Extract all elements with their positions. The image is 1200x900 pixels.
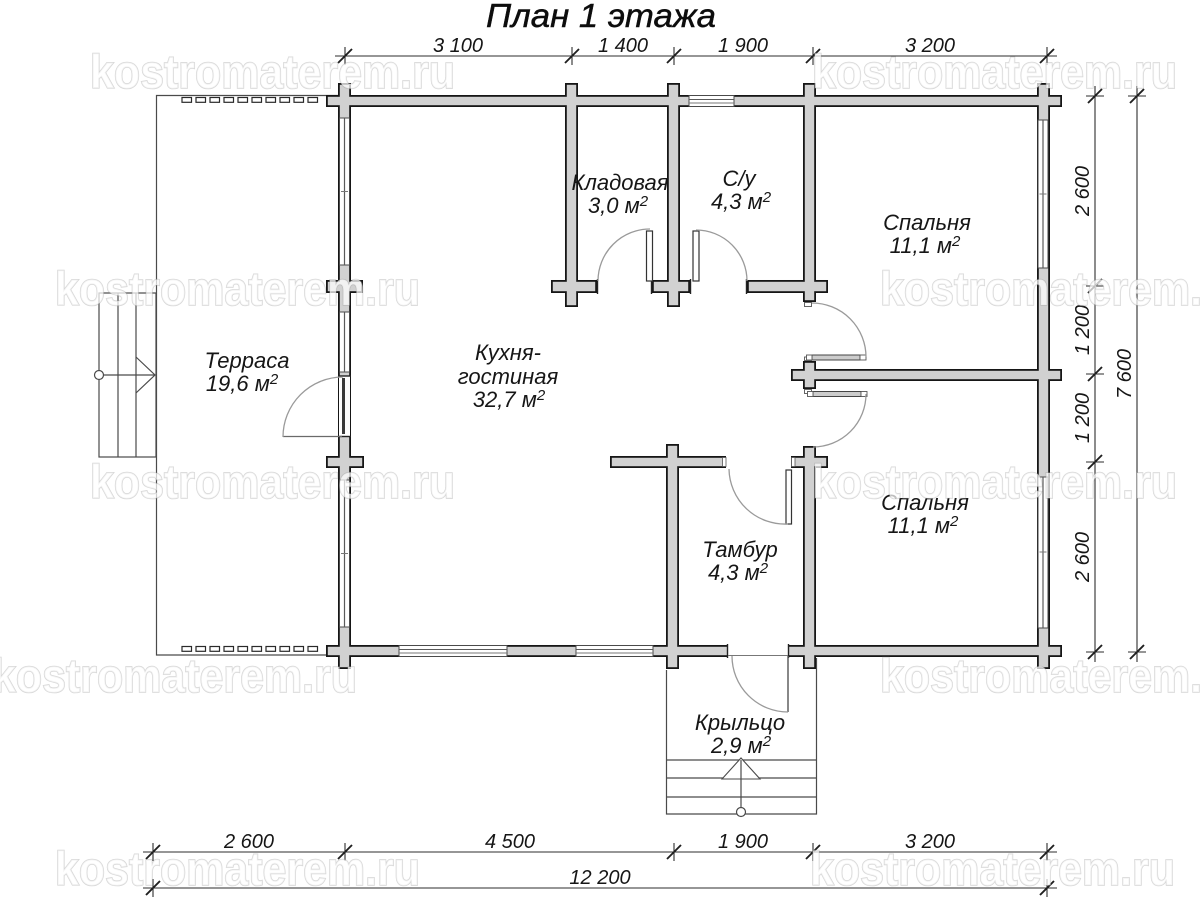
svg-text:Тамбур: Тамбур: [702, 537, 777, 562]
svg-text:kostromaterem.ru: kostromaterem.ru: [812, 455, 1177, 508]
svg-text:С/у: С/у: [723, 166, 758, 191]
svg-text:2 600: 2 600: [1072, 532, 1094, 583]
svg-text:kostromaterem.ru: kostromaterem.ru: [55, 262, 420, 315]
svg-text:12 200: 12 200: [569, 867, 630, 889]
svg-text:1 900: 1 900: [718, 35, 768, 57]
svg-text:kostromaterem.ru: kostromaterem.ru: [810, 842, 1175, 895]
svg-text:Терраса: Терраса: [205, 348, 290, 373]
svg-text:11,1 м2: 11,1 м2: [890, 233, 961, 258]
svg-text:3,0 м2: 3,0 м2: [588, 193, 649, 218]
svg-text:1 900: 1 900: [718, 831, 768, 853]
svg-text:kostromaterem.ru: kostromaterem.ru: [0, 649, 357, 702]
svg-text:19,6 м2: 19,6 м2: [206, 371, 279, 396]
svg-text:7 600: 7 600: [1114, 349, 1136, 399]
svg-text:kostromaterem.ru: kostromaterem.ru: [55, 842, 420, 895]
svg-text:гостиная: гостиная: [458, 364, 559, 389]
svg-text:1 200: 1 200: [1072, 393, 1094, 443]
svg-text:kostromaterem.ru: kostromaterem.ru: [812, 45, 1177, 98]
svg-text:Кухня-: Кухня-: [475, 340, 541, 365]
svg-text:1 400: 1 400: [598, 35, 648, 57]
svg-text:Спальня: Спальня: [883, 210, 971, 235]
svg-text:Крыльцо: Крыльцо: [695, 710, 785, 735]
svg-text:kostromaterem.ru: kostromaterem.ru: [880, 262, 1200, 315]
svg-text:4,3 м2: 4,3 м2: [711, 189, 772, 214]
svg-text:kostromaterem.ru: kostromaterem.ru: [90, 45, 455, 98]
svg-text:kostromaterem.ru: kostromaterem.ru: [90, 455, 455, 508]
svg-text:4,3 м2: 4,3 м2: [708, 560, 769, 585]
svg-text:11,1 м2: 11,1 м2: [888, 513, 959, 538]
svg-text:2,9 м2: 2,9 м2: [710, 733, 772, 758]
svg-text:Кладовая: Кладовая: [572, 170, 669, 195]
svg-text:kostromaterem.ru: kostromaterem.ru: [880, 649, 1200, 702]
svg-text:План 1 этажа: План 1 этажа: [486, 0, 716, 34]
svg-text:2 600: 2 600: [1072, 166, 1094, 217]
svg-text:4 500: 4 500: [485, 831, 535, 853]
svg-text:32,7 м2: 32,7 м2: [473, 387, 546, 412]
